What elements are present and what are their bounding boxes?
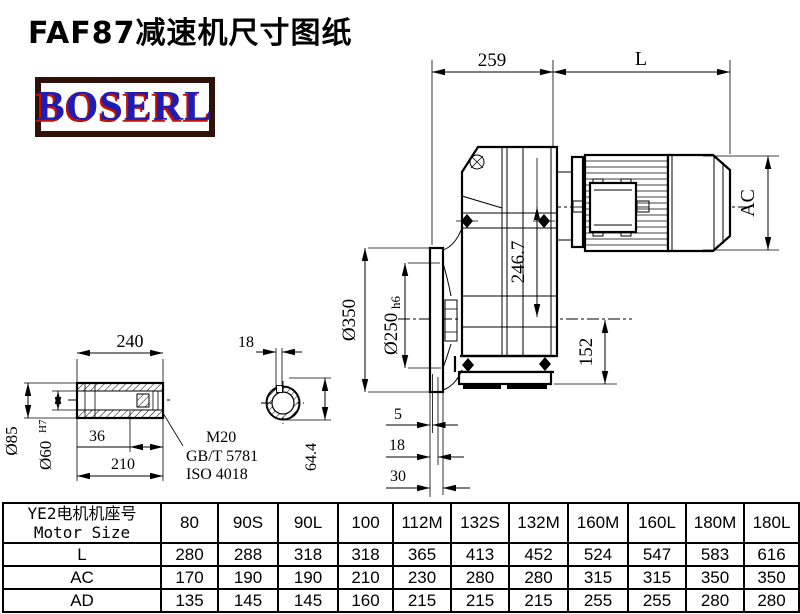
dim-flange-steps-group: 5 18 30 [386,374,470,497]
table-row-L: L 280 288 318 318 365 413 452 524 547 58… [3,543,799,566]
standard-iso: ISO 4018 [186,466,248,483]
dim-center-height-top: 246.7 [508,241,529,284]
motor-size-table: YE2电机机座号 Motor Size 80 90S 90L 100 112M … [2,502,800,613]
dim-152-group: 152 [554,320,617,384]
table-cell: 215 [509,589,568,612]
dim-shaft-bore-tolerance: H7 [37,419,49,433]
table-cell: 255 [628,589,686,612]
dim-keyway-height: 64.4 [303,443,320,471]
table-cell: 230 [393,566,451,589]
table-cell: 280 [686,589,744,612]
output-flange [430,228,462,392]
dim-259: 259 [478,50,507,71]
dim-hub-tolerance: h6 [388,296,403,310]
table-cell: 452 [509,543,568,566]
table-cell: 413 [451,543,509,566]
table-cell: 280 [509,566,568,589]
motor [557,155,730,251]
gearbox-body [456,147,557,389]
table-header-cell: 180M [686,503,744,543]
table-cell: 524 [568,543,628,566]
table-header-cell: 160M [568,503,628,543]
table-header-motor-size: YE2电机机座号 Motor Size [3,503,161,543]
page: { "title": "FAF87减速机尺寸图纸", "logo": { "te… [0,0,800,614]
row-label: AD [3,589,161,612]
dim-motor-length: L [635,48,647,70]
table-row-AD: AD 135 145 145 160 215 215 215 255 255 2… [3,589,799,612]
row-label: L [3,543,161,566]
table-cell: 255 [568,589,628,612]
table-cell: 170 [161,566,218,589]
shaft-detail: 240 Ø85 Ø60 H7 36 210 M20 GB/T 5781 ISO … [2,331,258,483]
dim-L-group: L [553,48,730,72]
dim-shaft-step-210: 210 [111,456,135,473]
table-header-cell: 132S [451,503,509,543]
dim-keyway-width: 18 [238,334,254,351]
table-cell: 215 [451,589,509,612]
table-header-cell: 90L [278,503,338,543]
table-cell: 145 [218,589,278,612]
table-cell: 190 [278,566,338,589]
table-cell: 583 [686,543,744,566]
table-cell: 350 [686,566,744,589]
table-cell: 365 [393,543,451,566]
table-cell: 318 [338,543,393,566]
table-header-cell: 180L [744,503,799,543]
table-header-cn: YE2电机机座号 [4,504,160,523]
table-cell: 616 [744,543,799,566]
table-header-cell: 80 [161,503,218,543]
dim-shaft-outer-diameter: Ø85 [2,426,21,455]
bolt-mark [539,357,551,371]
table-cell: 280 [744,589,799,612]
table-cell: 315 [628,566,686,589]
bolt-mark [462,358,474,372]
dim-flange-step-3: 30 [390,468,406,485]
table-cell: 160 [338,589,393,612]
table-cell: 280 [161,543,218,566]
table-cell: 288 [218,543,278,566]
dim-hub-diameter: Ø250 [381,313,402,355]
table-header-en: Motor Size [4,523,160,542]
dim-center-height-bottom: 152 [576,338,597,367]
table-cell: 350 [744,566,799,589]
table-header-cell: 160L [628,503,686,543]
row-label: AC [3,566,161,589]
table-row-AC: AC 170 190 190 210 230 280 280 315 315 3… [3,566,799,589]
technical-drawing: 259 L AC Ø350 Ø250 h6 246.7 152 [0,0,800,502]
table-cell: 315 [568,566,628,589]
table-header-cell: 112M [393,503,451,543]
fan-cover [668,155,730,251]
table-cell: 280 [451,566,509,589]
table-header-cell: 90S [218,503,278,543]
table-header-cell: 132M [509,503,568,543]
table-cell: 135 [161,589,218,612]
dim-flange-diameter: Ø350 [339,299,360,341]
standard-gb: GB/T 5781 [186,448,258,465]
table-cell: 190 [218,566,278,589]
dim-flange-step-1: 5 [394,406,402,423]
table-cell: 210 [338,566,393,589]
dim-shaft-bore-diameter: Ø60 [36,441,55,470]
table-header-cell: 100 [338,503,393,543]
table-cell: 215 [393,589,451,612]
dim-shaft-step-36: 36 [89,428,105,445]
thread-spec: M20 [206,429,236,446]
table-cell: 547 [628,543,686,566]
dim-flange-step-2: 18 [389,437,405,454]
table-cell: 145 [278,589,338,612]
table-cell: 318 [278,543,338,566]
dim-shaft-length: 240 [117,331,144,351]
dim-motor-diameter: AC [737,189,759,217]
